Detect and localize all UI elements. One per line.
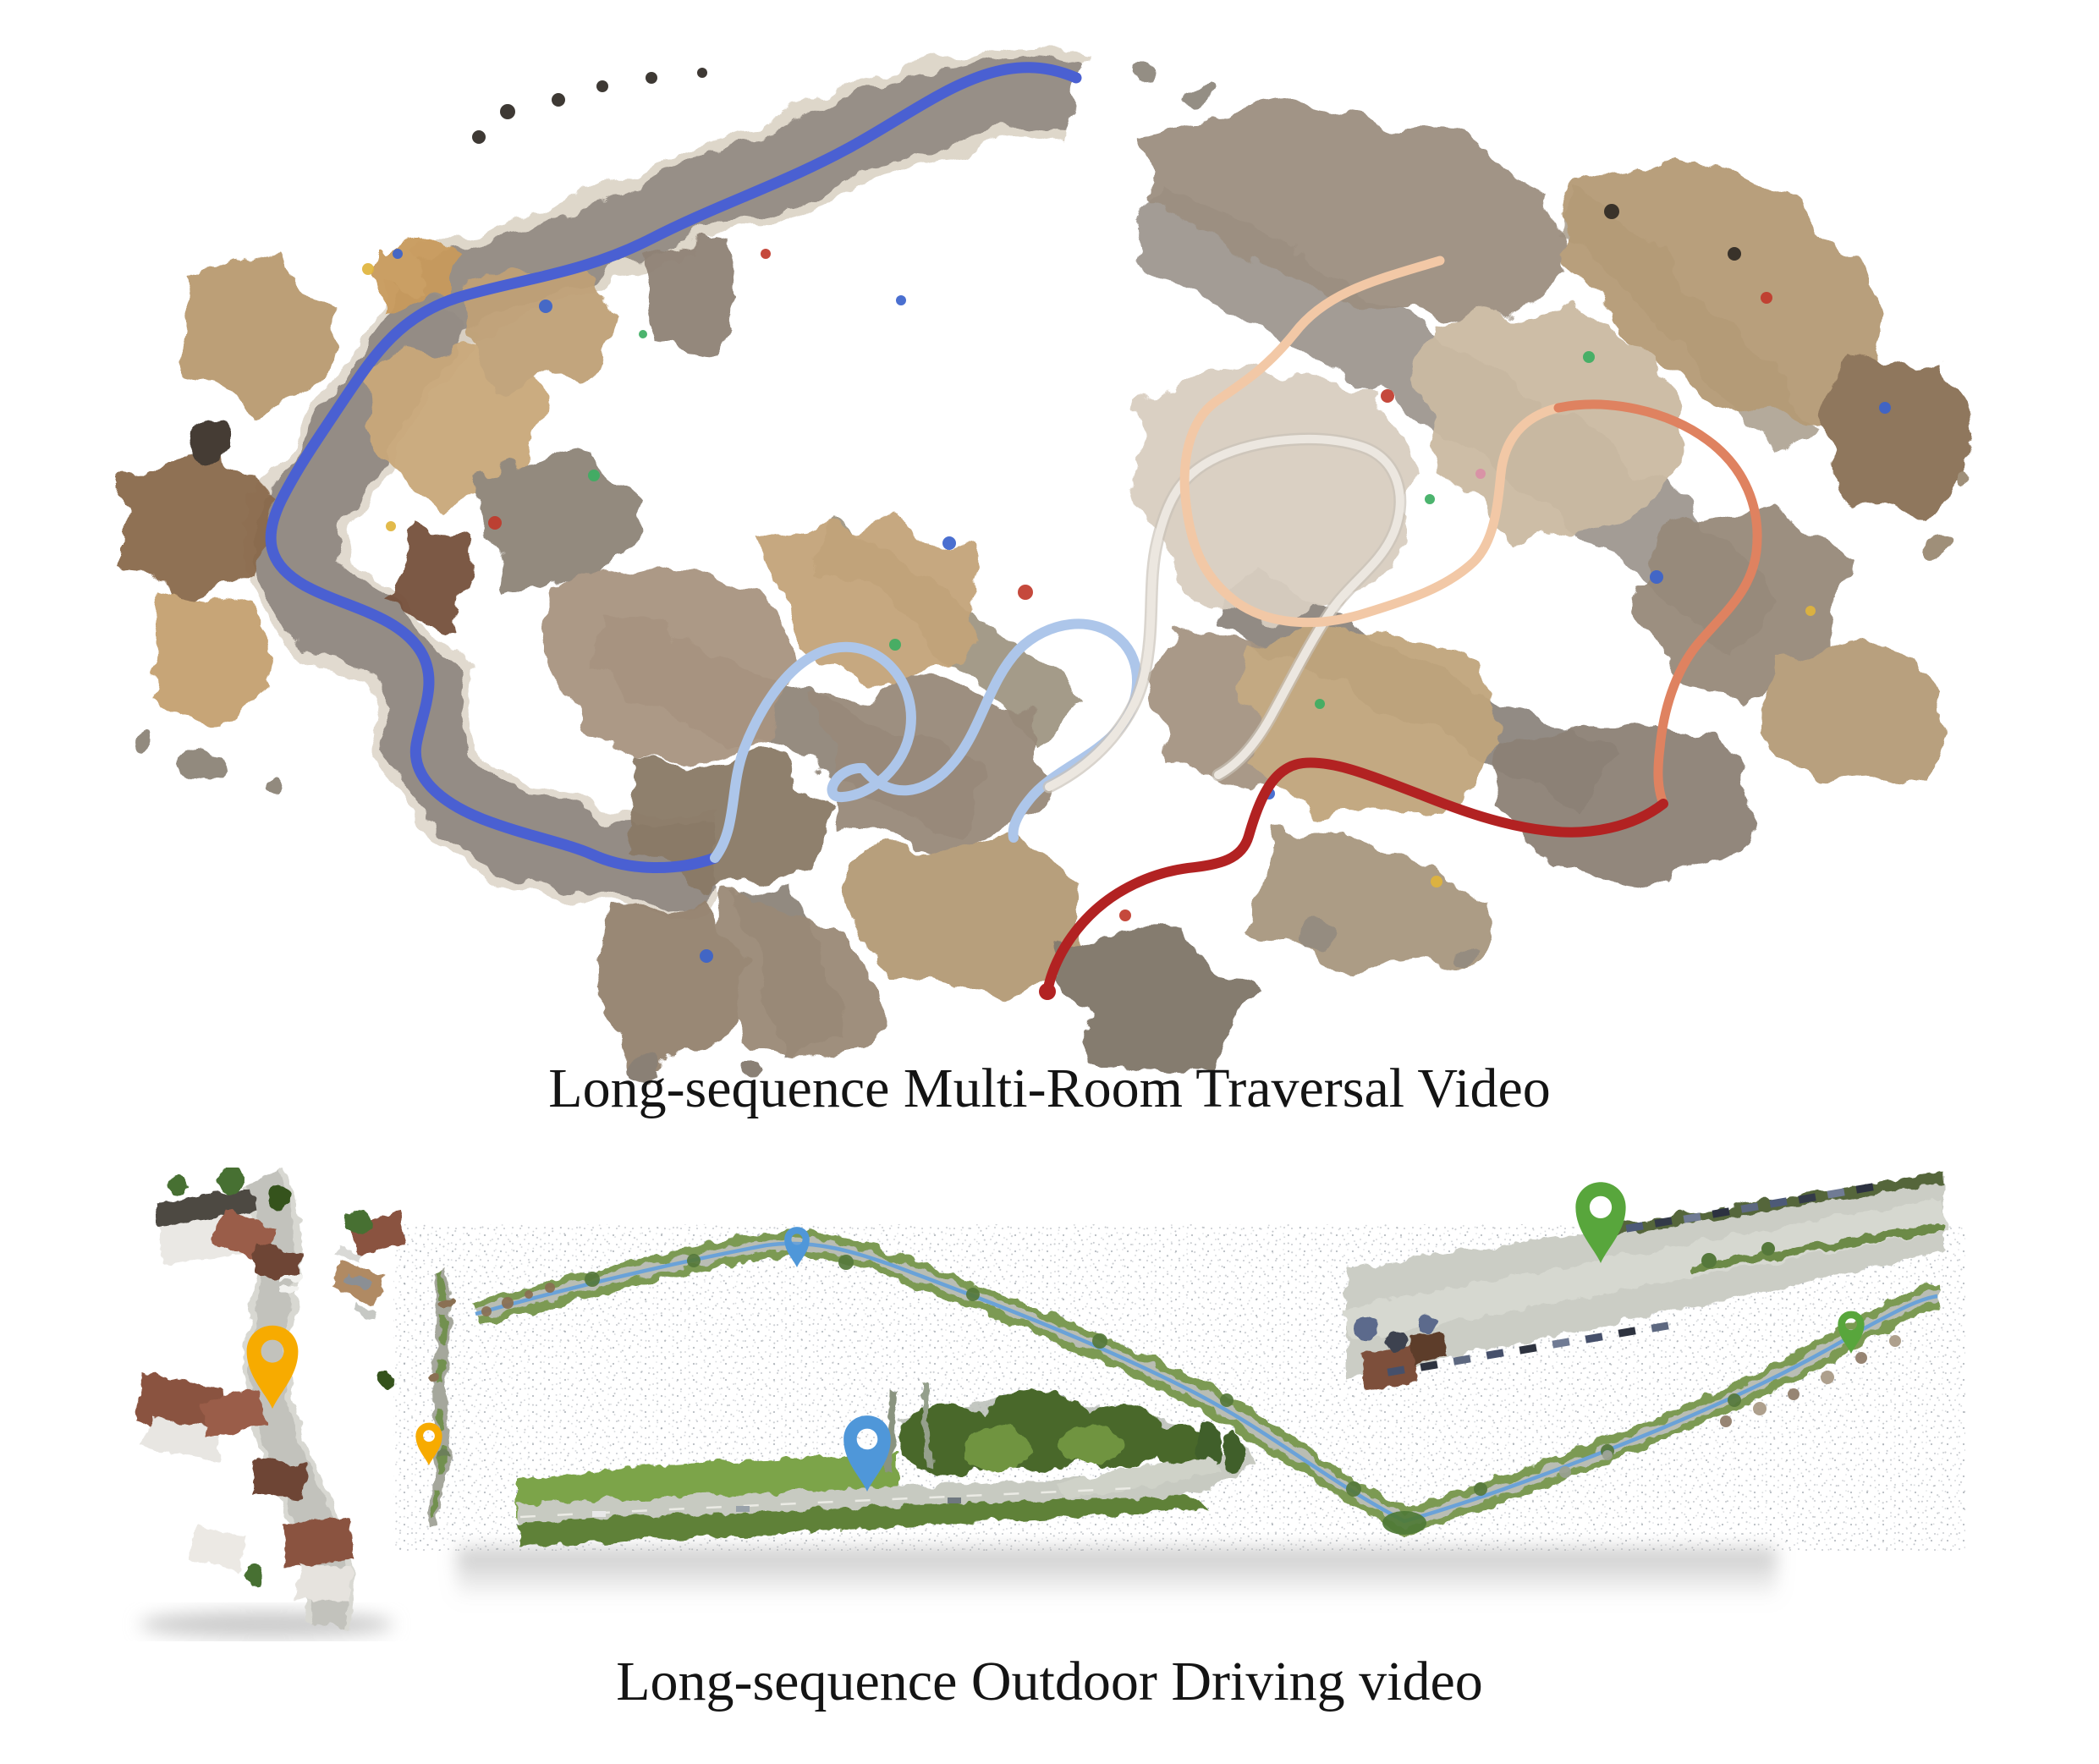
- outdoor-driving-pointcloud-figure: [0, 1168, 2099, 1641]
- room-blobs: [127, 70, 1980, 1083]
- village-shadow: [140, 1611, 393, 1638]
- pointcloud-multi-room: [127, 68, 1980, 1083]
- bottom-figure-caption: Long-sequence Outdoor Driving video: [0, 1652, 2099, 1711]
- top-figure-caption: Long-sequence Multi-Room Traversal Video: [0, 1059, 2099, 1118]
- ground-shadow: [457, 1548, 1777, 1601]
- multi-room-pointcloud-figure: [0, 0, 2099, 1168]
- bush: [1761, 1242, 1775, 1256]
- bush: [1701, 1253, 1717, 1268]
- paper-figure-page: Long-sequence Multi-Room Traversal Video: [0, 0, 2099, 1764]
- trajectory-red-endpoint: [1039, 983, 1056, 1000]
